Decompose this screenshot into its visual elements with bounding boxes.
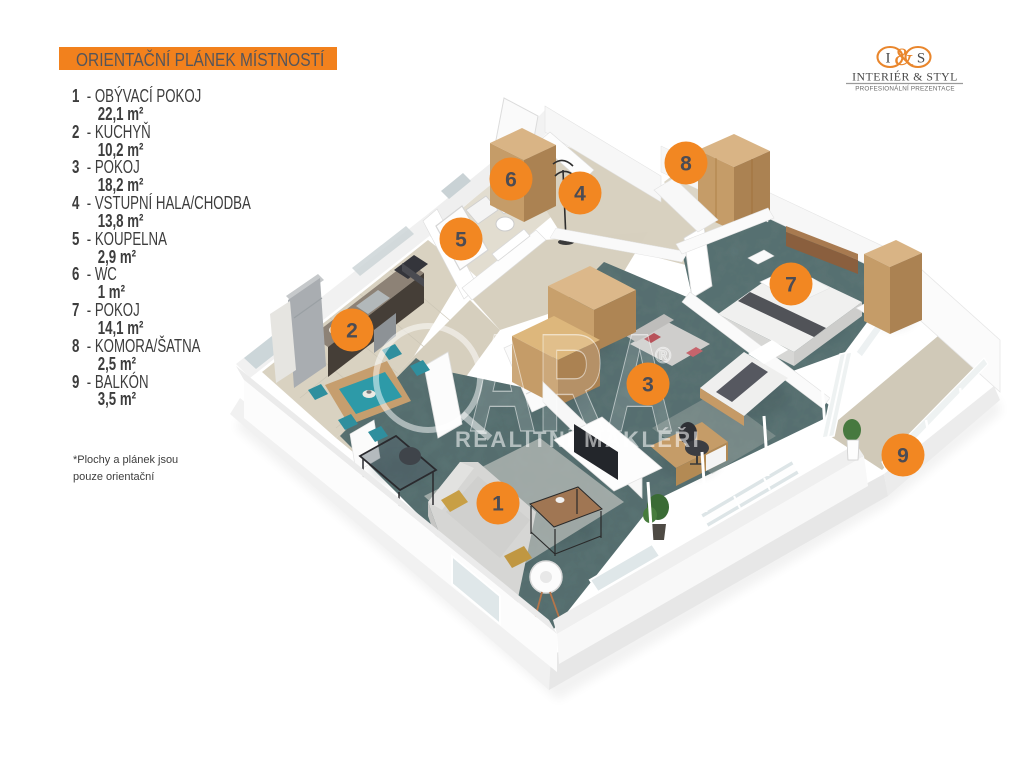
svg-text:3: 3 <box>642 374 654 397</box>
svg-text:6: 6 <box>505 169 517 192</box>
svg-text:8: 8 <box>680 153 692 176</box>
svg-text:2: 2 <box>346 320 358 343</box>
svg-text:4: 4 <box>574 183 586 206</box>
svg-text:5: 5 <box>455 229 467 252</box>
svg-text:7: 7 <box>785 274 797 297</box>
svg-text:REALITNÍ MAKLÉŘI: REALITNÍ MAKLÉŘI <box>455 427 701 452</box>
svg-text:1: 1 <box>492 493 504 516</box>
svg-text:9: 9 <box>897 445 909 468</box>
svg-text:®: ® <box>655 343 671 368</box>
